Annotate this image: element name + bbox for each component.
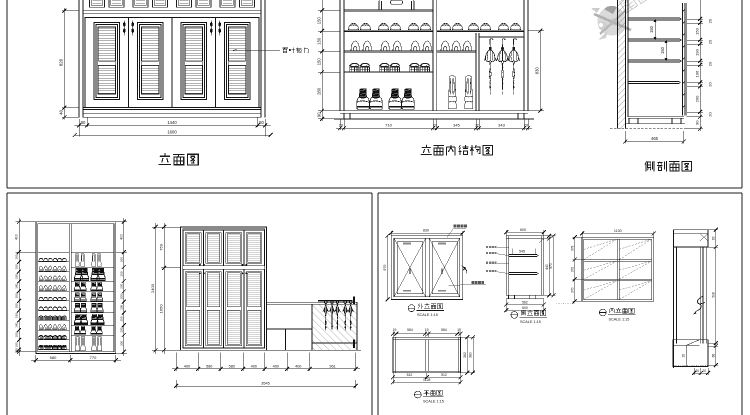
svg-text:345: 345 bbox=[453, 123, 460, 128]
svg-text:400: 400 bbox=[273, 364, 279, 368]
svg-text:180: 180 bbox=[15, 254, 19, 259]
svg-text:19: 19 bbox=[393, 328, 397, 332]
svg-text:SCALE 1:15: SCALE 1:15 bbox=[520, 320, 541, 324]
svg-text:600: 600 bbox=[520, 228, 526, 232]
svg-text:750: 750 bbox=[158, 243, 163, 250]
svg-text:19: 19 bbox=[457, 328, 461, 332]
svg-text:562: 562 bbox=[522, 300, 528, 304]
svg-text:20: 20 bbox=[708, 61, 713, 66]
svg-text:180: 180 bbox=[15, 283, 19, 288]
svg-text:150: 150 bbox=[316, 17, 321, 25]
svg-text:80: 80 bbox=[259, 120, 264, 125]
svg-text:20: 20 bbox=[696, 369, 700, 373]
svg-text:2400: 2400 bbox=[150, 283, 155, 293]
svg-text:1650: 1650 bbox=[158, 304, 163, 314]
svg-text:370: 370 bbox=[570, 287, 574, 293]
svg-text:580: 580 bbox=[206, 364, 212, 368]
svg-text:20: 20 bbox=[339, 123, 344, 128]
svg-text:63: 63 bbox=[711, 236, 715, 240]
svg-text:20: 20 bbox=[708, 112, 713, 117]
svg-text:150: 150 bbox=[660, 46, 665, 54]
svg-text:SCALE 1:15: SCALE 1:15 bbox=[417, 313, 438, 317]
svg-text:20: 20 bbox=[475, 123, 480, 128]
svg-text:580: 580 bbox=[50, 355, 57, 360]
svg-text:512: 512 bbox=[441, 373, 447, 377]
svg-text:770: 770 bbox=[90, 355, 97, 360]
svg-text:400: 400 bbox=[251, 364, 257, 368]
svg-text:512: 512 bbox=[407, 373, 413, 377]
svg-text:400: 400 bbox=[119, 234, 123, 240]
svg-text:190: 190 bbox=[694, 48, 699, 55]
svg-text:370: 370 bbox=[570, 267, 574, 273]
svg-text:SCALE 1:15: SCALE 1:15 bbox=[423, 400, 444, 404]
svg-text:20: 20 bbox=[708, 82, 713, 87]
svg-text:1128: 1128 bbox=[423, 378, 430, 382]
svg-text:196: 196 bbox=[694, 70, 699, 77]
svg-text:180: 180 bbox=[15, 348, 19, 353]
svg-text:150: 150 bbox=[649, 25, 654, 33]
svg-text:200: 200 bbox=[119, 257, 123, 262]
svg-text:180: 180 bbox=[15, 274, 19, 279]
svg-text:970: 970 bbox=[549, 263, 553, 269]
svg-text:584: 584 bbox=[407, 328, 413, 332]
svg-text:68: 68 bbox=[711, 354, 715, 358]
svg-text:150: 150 bbox=[316, 58, 321, 66]
svg-text:19: 19 bbox=[425, 328, 429, 332]
svg-text:961: 961 bbox=[329, 364, 335, 368]
svg-text:180: 180 bbox=[15, 332, 19, 337]
svg-text:970: 970 bbox=[383, 265, 387, 271]
svg-text:200: 200 bbox=[119, 316, 123, 321]
svg-text:710: 710 bbox=[385, 123, 392, 128]
svg-text:343: 343 bbox=[498, 123, 505, 128]
svg-text:200: 200 bbox=[119, 327, 123, 332]
svg-text:1440: 1440 bbox=[167, 120, 177, 125]
svg-text:820: 820 bbox=[59, 58, 64, 66]
svg-text:400: 400 bbox=[184, 364, 190, 368]
svg-text:200: 200 bbox=[119, 271, 123, 276]
svg-text:830: 830 bbox=[423, 229, 429, 233]
svg-text:600: 600 bbox=[522, 306, 528, 310]
svg-text:180: 180 bbox=[15, 342, 19, 347]
svg-text:150: 150 bbox=[316, 37, 321, 45]
svg-text:200: 200 bbox=[119, 294, 123, 299]
svg-text:20: 20 bbox=[682, 354, 686, 358]
svg-text:400: 400 bbox=[15, 234, 19, 240]
svg-text:280: 280 bbox=[316, 87, 321, 95]
svg-text:20: 20 bbox=[708, 18, 713, 23]
svg-text:180: 180 bbox=[15, 303, 19, 308]
svg-text:400: 400 bbox=[295, 364, 301, 368]
svg-text:180: 180 bbox=[15, 313, 19, 318]
svg-text:20: 20 bbox=[708, 39, 713, 44]
svg-text:830: 830 bbox=[535, 67, 540, 75]
svg-text:378: 378 bbox=[570, 246, 574, 252]
svg-text:3545: 3545 bbox=[261, 381, 269, 385]
svg-text:180: 180 bbox=[15, 264, 19, 269]
svg-text:20: 20 bbox=[524, 123, 529, 128]
svg-text:465: 465 bbox=[651, 136, 659, 141]
svg-text:1600: 1600 bbox=[167, 130, 177, 135]
svg-text:180: 180 bbox=[15, 293, 19, 298]
svg-text:20: 20 bbox=[703, 369, 707, 373]
svg-text:80: 80 bbox=[81, 120, 86, 125]
svg-text:150: 150 bbox=[694, 27, 699, 34]
svg-text:380: 380 bbox=[469, 352, 473, 358]
svg-text:545: 545 bbox=[519, 249, 525, 253]
svg-text:580: 580 bbox=[229, 364, 235, 368]
svg-text:40: 40 bbox=[59, 109, 64, 114]
svg-text:200: 200 bbox=[119, 304, 123, 309]
svg-text:180: 180 bbox=[15, 322, 19, 327]
svg-text:90: 90 bbox=[694, 120, 699, 125]
svg-text:598: 598 bbox=[711, 292, 715, 298]
svg-text:200: 200 bbox=[119, 341, 123, 346]
svg-text:20: 20 bbox=[433, 123, 438, 128]
svg-text:362: 362 bbox=[463, 352, 467, 358]
svg-text:200: 200 bbox=[694, 95, 699, 102]
svg-text:584: 584 bbox=[441, 328, 447, 332]
svg-text:90: 90 bbox=[316, 112, 321, 117]
svg-text:200: 200 bbox=[119, 283, 123, 288]
svg-text:SCALE 1:15: SCALE 1:15 bbox=[609, 318, 630, 322]
svg-text:1130: 1130 bbox=[614, 229, 622, 233]
